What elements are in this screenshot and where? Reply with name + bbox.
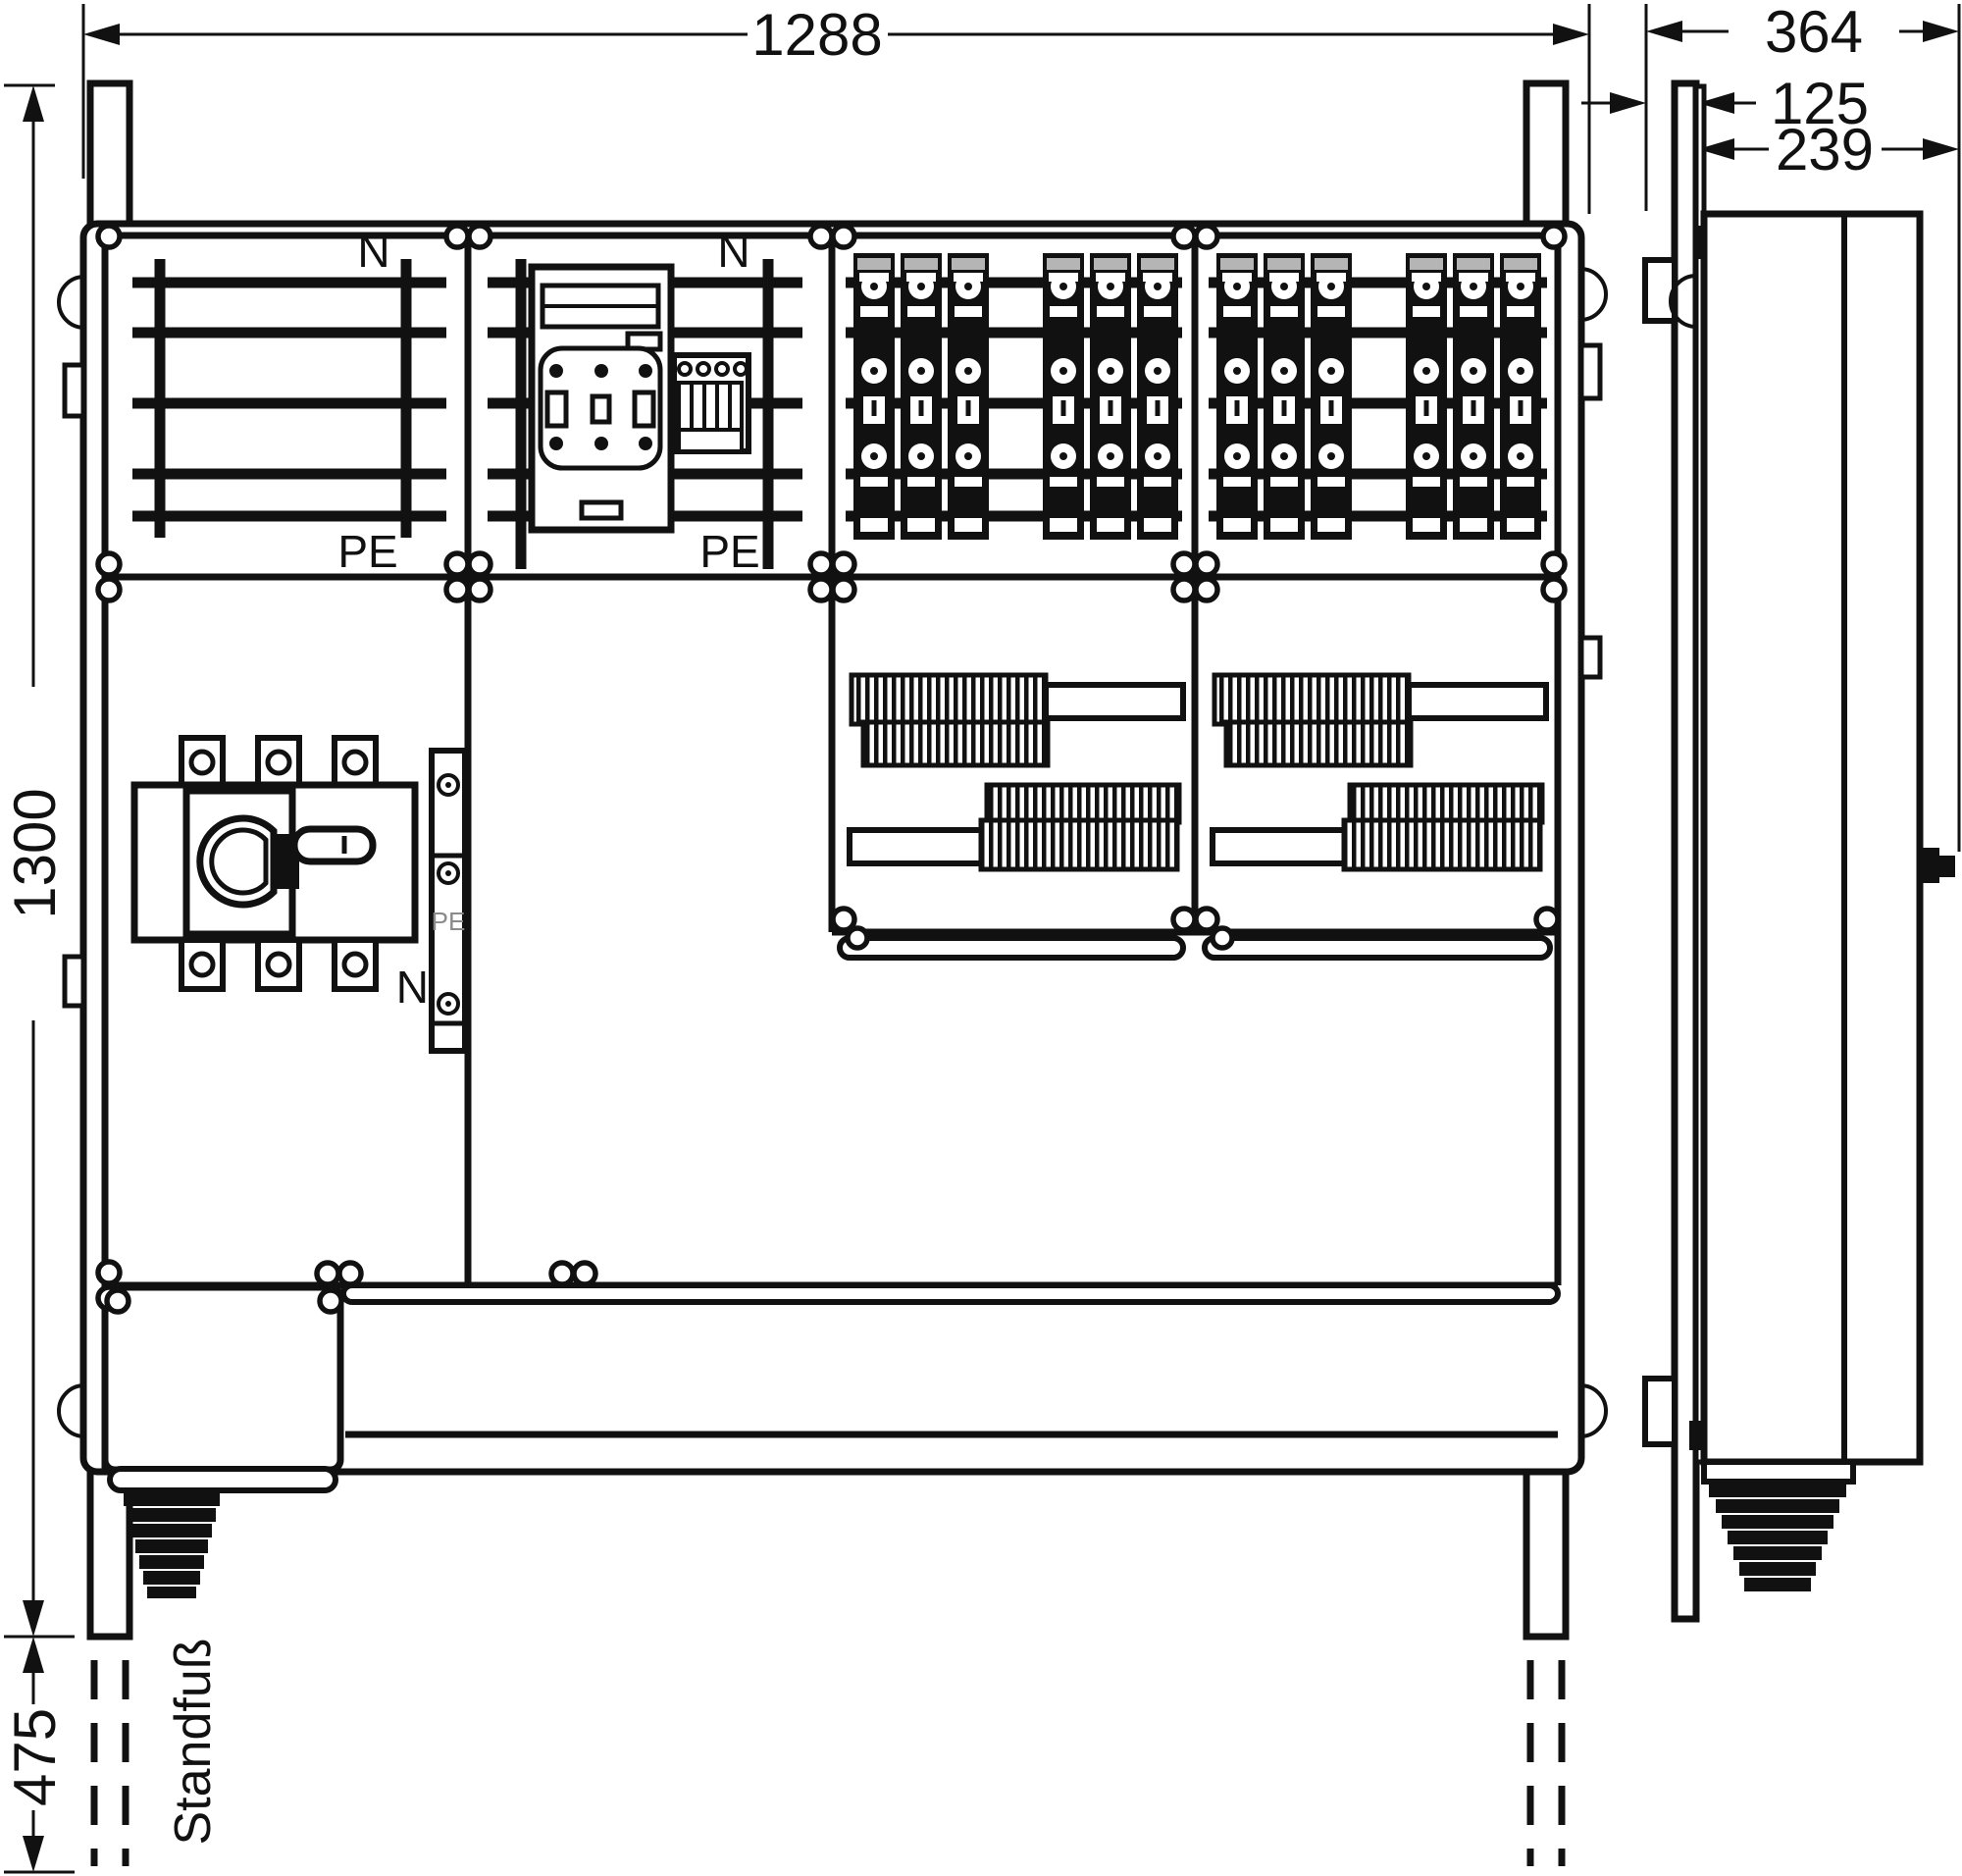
side-view (1645, 83, 1955, 1619)
drawing-svg: 1288 364 125 239 1300 475 Standfuß (0, 0, 1962, 1876)
dimension-depth-enclosure-239: 239 (1698, 117, 1959, 182)
dimensional-drawing: 1288 364 125 239 1300 475 Standfuß (0, 0, 1962, 1876)
module1-n-label: N (357, 226, 389, 277)
dim-depth-enclosure-label: 239 (1776, 117, 1874, 182)
dim-width-label: 1288 (751, 2, 882, 68)
stand-post-side (1675, 83, 1696, 1619)
dimension-width-1288: 1288 (83, 2, 1589, 214)
module2-pe-label: PE (699, 526, 759, 577)
wall-bracket (1645, 1379, 1675, 1444)
standfuss-label: Standfuß (165, 1638, 222, 1845)
hinge-dome-icon (59, 1385, 83, 1436)
enclosure-side (1704, 214, 1920, 1462)
npe-rail-pe-label: PE (432, 907, 466, 936)
dimension-stand-475: 475 (2, 1637, 75, 1872)
side-handle-icon (1920, 848, 1955, 883)
hinge-dome-icon (1581, 269, 1606, 320)
hinge-dome-icon (59, 277, 83, 328)
dim-stand-label: 475 (2, 1708, 68, 1806)
terminal-block (674, 355, 749, 451)
cable-gland-icon (124, 1492, 220, 1598)
module2-n-label: N (717, 226, 749, 277)
hinge-dome-icon (1581, 1385, 1606, 1436)
dim-height-label: 1300 (2, 788, 68, 918)
dim-depth-total-label: 364 (1765, 0, 1863, 65)
wall-bracket (1645, 260, 1675, 321)
npe-rail: PE (432, 751, 466, 1051)
module1-pe-label: PE (337, 526, 397, 577)
nh-fuse-switch (532, 267, 671, 530)
latch-icon (1696, 226, 1705, 259)
latch-icon (1689, 1421, 1702, 1450)
cable-entry-module (105, 1287, 340, 1598)
npe-rail-n-label: N (396, 962, 429, 1013)
front-view: PE N PE N PE N (59, 83, 1606, 1866)
cable-gland-side-icon (1704, 1462, 1853, 1591)
